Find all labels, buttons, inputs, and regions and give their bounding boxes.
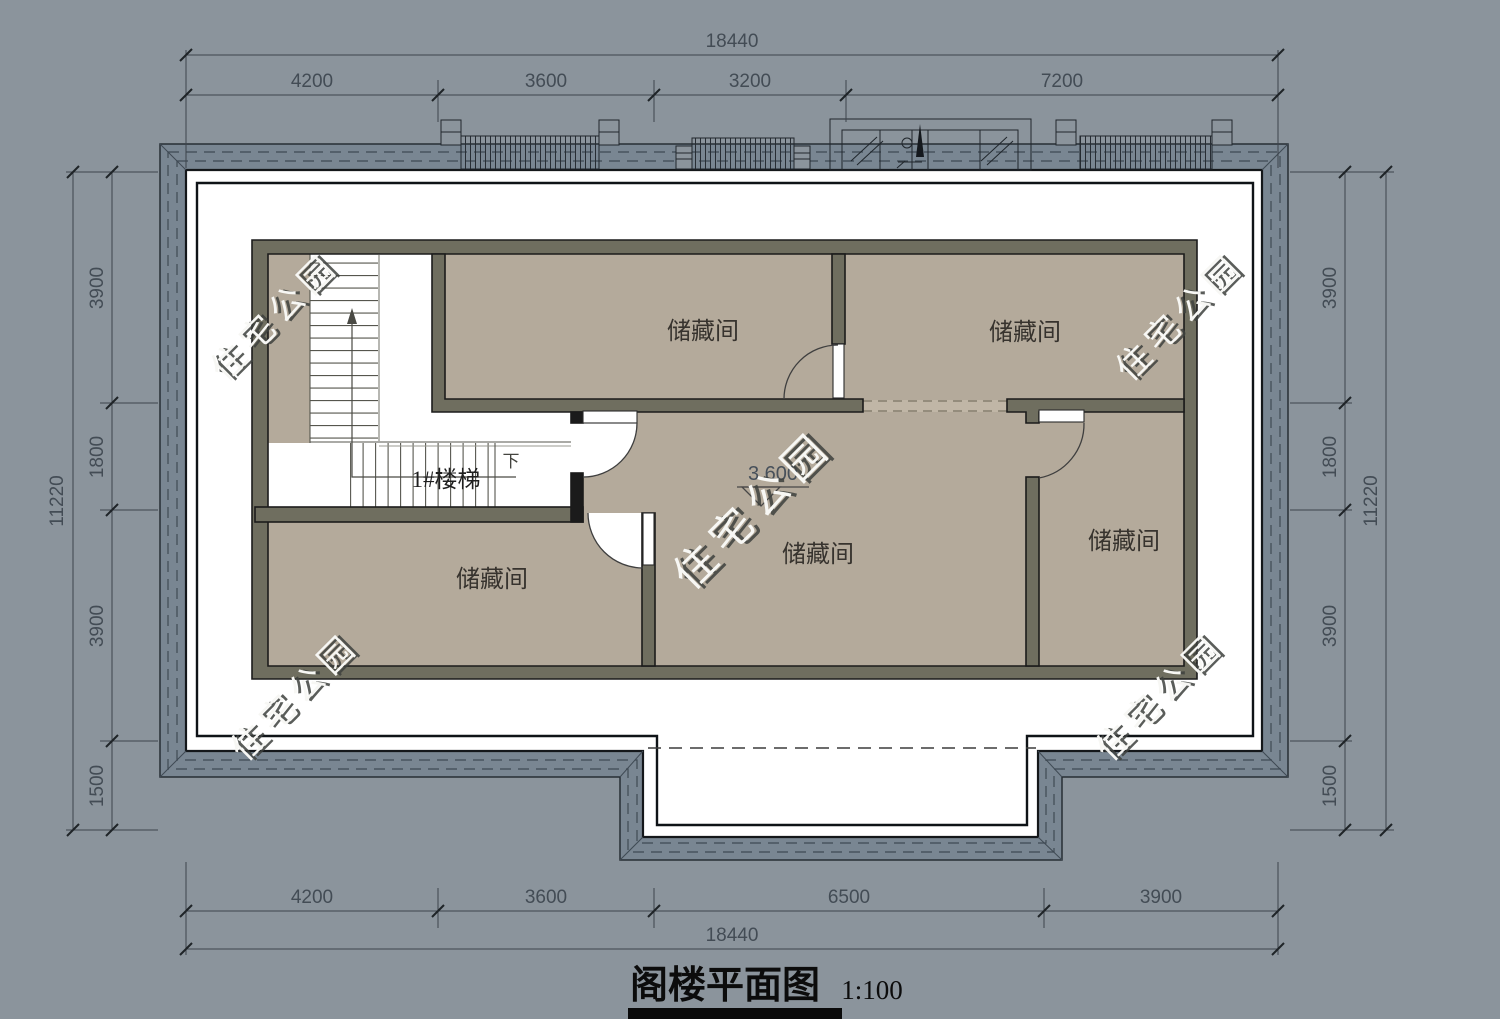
- dim-left-seg-3: 3900: [87, 605, 108, 647]
- door-leaf-storage-sw: [643, 513, 654, 565]
- room-label-storage-right: 储藏间: [1088, 528, 1160, 555]
- drawing-title: 阁楼平面图: [630, 965, 820, 1007]
- drawing-scale: 1:100: [841, 975, 903, 1005]
- stair-down-label: 下: [503, 452, 520, 471]
- door-jamb-stub-upper: [571, 412, 583, 423]
- dim-right-overall: 11220: [1361, 475, 1382, 526]
- room-label-storage-bottom-left: 储藏间: [456, 566, 528, 593]
- dim-right-seg-3: 3900: [1320, 605, 1341, 647]
- door-leaf-stair-entry: [583, 411, 637, 423]
- dim-right-seg-1: 3900: [1320, 267, 1341, 309]
- stair-entry-opening: [571, 423, 583, 473]
- dim-left-seg-2: 1800: [87, 436, 108, 478]
- room-label-storage-middle: 储藏间: [782, 541, 854, 568]
- door-leaf-storage-right: [1039, 410, 1084, 422]
- floor-plan-canvas: 3.600 储藏间 储藏间 储藏间 储藏间 储藏间 1#楼梯 下: [0, 0, 1500, 1019]
- room-label-storage-top-right: 储藏间: [989, 319, 1061, 346]
- railing-middle: [676, 138, 810, 169]
- wall-right-storage-west: [1026, 477, 1039, 666]
- dim-top-seg-1: 4200: [291, 71, 333, 92]
- dim-right-seg-2: 1800: [1320, 436, 1341, 478]
- door-jamb-stub-lower: [571, 473, 583, 522]
- door-leaf-top-rooms: [833, 344, 844, 398]
- dim-right-seg-4: 1500: [1320, 765, 1341, 807]
- dim-left-seg-4: 1500: [87, 765, 108, 807]
- partition-top-rooms: [832, 254, 845, 344]
- title-underline-bar: [628, 1008, 842, 1019]
- attic-plan-page: 3.600 储藏间 储藏间 储藏间 储藏间 储藏间 1#楼梯 下: [0, 0, 1500, 1019]
- dim-left-seg-1: 3900: [87, 267, 108, 309]
- dim-bottom-seg-1: 4200: [291, 887, 333, 908]
- dim-top-seg-2: 3600: [525, 71, 567, 92]
- interior-rooms: 3.600 储藏间 储藏间 储藏间 储藏间 储藏间 1#楼梯 下: [252, 240, 1197, 679]
- dim-bottom-seg-2: 3600: [525, 887, 567, 908]
- stair-label: 1#楼梯: [412, 467, 481, 492]
- stairwell-south-wall: [255, 507, 583, 522]
- dim-top-seg-3: 3200: [729, 71, 771, 92]
- dim-bottom-overall: 18440: [706, 925, 759, 946]
- room-label-storage-top-middle: 储藏间: [667, 318, 739, 345]
- dim-top-seg-4: 7200: [1041, 71, 1083, 92]
- dim-left-overall: 11220: [47, 475, 68, 526]
- dim-bottom-seg-3: 6500: [828, 887, 870, 908]
- dim-bottom-seg-4: 3900: [1140, 887, 1182, 908]
- dim-top-overall: 18440: [706, 31, 759, 52]
